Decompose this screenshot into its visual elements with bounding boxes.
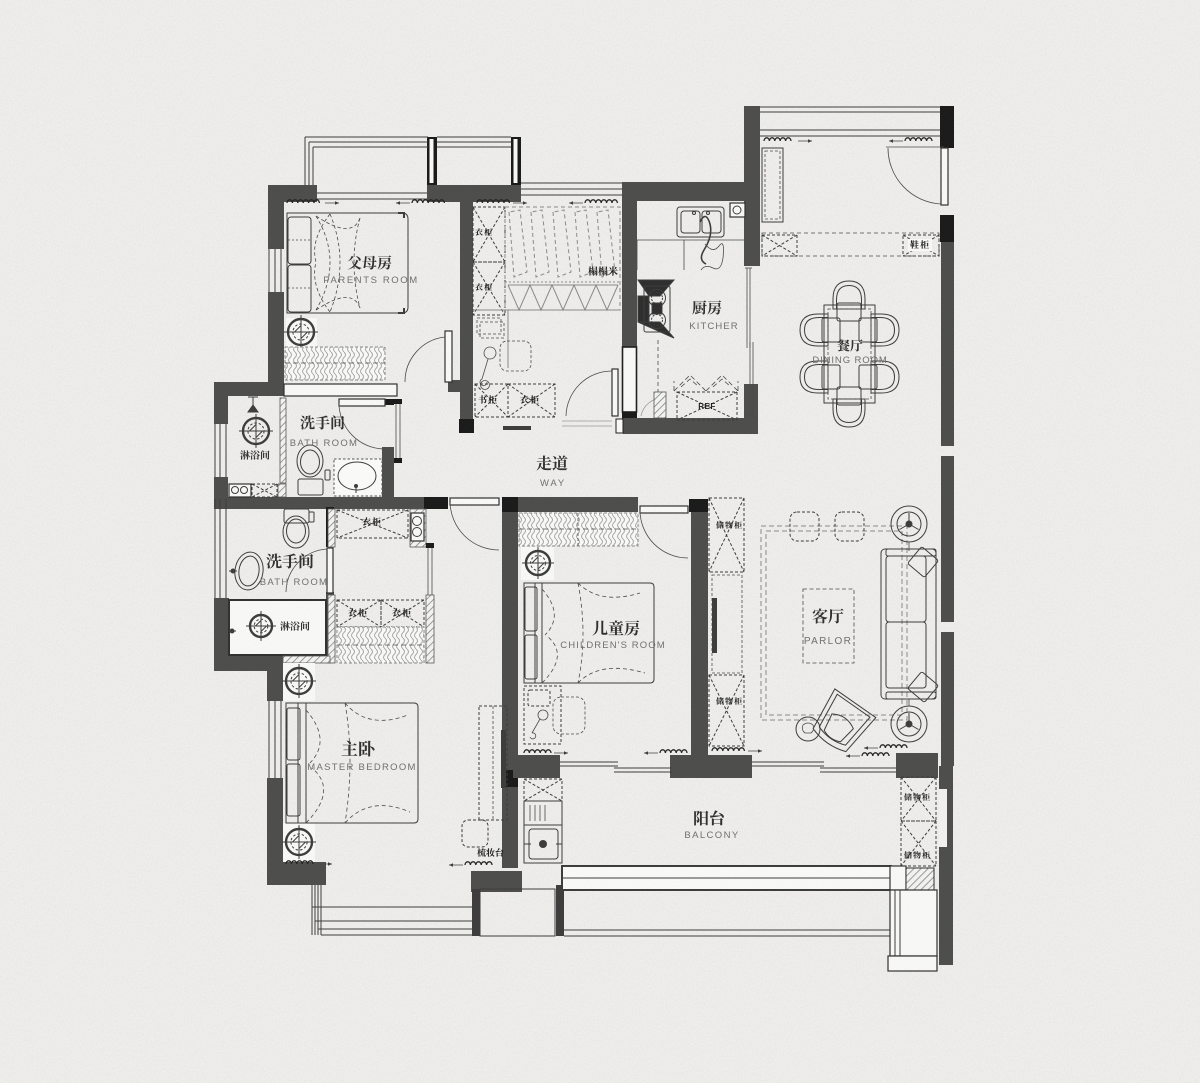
- svg-text:BALCONY: BALCONY: [684, 830, 739, 841]
- svg-text:PARENTS ROOM: PARENTS ROOM: [323, 275, 419, 286]
- svg-text:REF: REF: [698, 402, 716, 411]
- svg-text:BATH ROOM: BATH ROOM: [290, 438, 359, 449]
- svg-text:KITCHER: KITCHER: [689, 321, 738, 332]
- svg-text:WAY: WAY: [540, 478, 566, 489]
- svg-text:PARLOR: PARLOR: [804, 636, 852, 647]
- svg-text:MASTER BEDROOM: MASTER BEDROOM: [307, 762, 417, 773]
- svg-text:CHILDREN'S ROOM: CHILDREN'S ROOM: [560, 640, 665, 651]
- svg-text:BATH ROOM: BATH ROOM: [260, 577, 329, 588]
- svg-text:DINING ROOM: DINING ROOM: [812, 355, 887, 366]
